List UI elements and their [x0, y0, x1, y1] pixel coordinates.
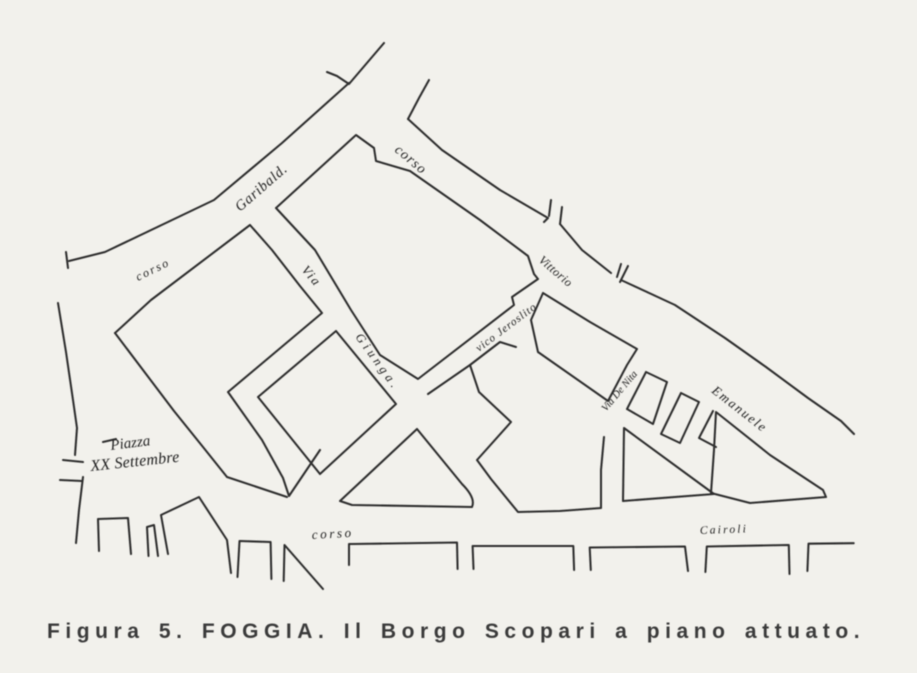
svg-text:Cairoli: Cairoli — [700, 523, 749, 537]
svg-text:corso: corso — [311, 525, 354, 542]
svg-text:Figura 5. FOGGIA. Il Borgo Sco: Figura 5. FOGGIA. Il Borgo Scopari a pia… — [47, 620, 865, 643]
